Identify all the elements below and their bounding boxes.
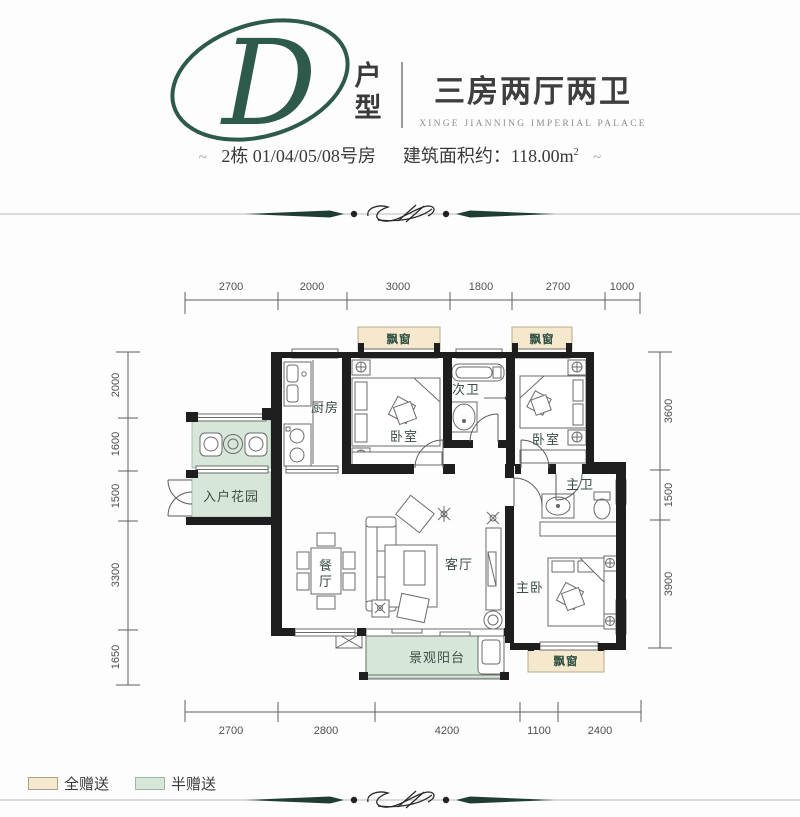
arrow-right-icon	[245, 797, 344, 804]
logo-caption-char-1: 户	[350, 60, 386, 92]
floor-plan: 2700 2000 3000 1800 2700 1000 2700 2800 …	[100, 272, 720, 750]
living-furniture	[366, 495, 502, 629]
dim-top-3: 3000	[386, 281, 410, 293]
dim-top-2: 2000	[300, 281, 324, 293]
bedroom2-furniture	[352, 360, 442, 465]
plant-icon	[487, 512, 499, 524]
logo-caption: 户 型	[350, 60, 386, 125]
page-title: 三房两厅两卫	[418, 66, 648, 111]
bay-window-label-3: 飘窗	[554, 654, 579, 668]
dim-top-6: 1000	[610, 281, 634, 293]
legend-swatch-half-gift	[135, 777, 165, 790]
ornament-divider-top	[0, 199, 800, 229]
building-number: 2栋 01/04/05/08号房	[221, 146, 376, 166]
dim-right-1: 3600	[663, 399, 675, 423]
bay-window-label-1: 飘窗	[387, 332, 412, 346]
dim-left-5: 1650	[110, 645, 122, 669]
room-label-master-bedroom: 主卧	[516, 580, 544, 595]
dim-bottom-5: 2400	[588, 725, 612, 737]
room-label-kitchen: 厨房	[311, 400, 339, 415]
flourish-left: ~	[199, 150, 207, 166]
bay-window-label-2: 飘窗	[530, 332, 555, 346]
dim-left-3: 1500	[110, 484, 122, 508]
arrow-left-icon	[456, 211, 555, 218]
unit-info-line: ~ 2栋 01/04/05/08号房 建筑面积约：118.00m2 ~	[0, 142, 800, 168]
arrow-right-icon	[245, 211, 344, 218]
room-label-dining-1: 餐	[319, 558, 333, 573]
dim-top-1: 2700	[219, 281, 243, 293]
dim-top-5: 2700	[546, 281, 570, 293]
room-label-dining-2: 厅	[319, 574, 333, 589]
legend: 全赠送 半赠送	[28, 773, 216, 794]
title-divider	[401, 62, 403, 128]
plant-icon	[438, 506, 450, 522]
dim-bottom-2: 2800	[314, 725, 338, 737]
title-block: 三房两厅两卫 XINGE JIANNING IMPERIAL PALACE	[418, 66, 648, 129]
logo-d-flourish: D	[160, 8, 360, 153]
kitchen-fixtures	[284, 360, 313, 466]
dim-left-4: 3300	[110, 563, 122, 587]
room-label-entry-garden: 入户花园	[203, 489, 259, 504]
arrow-left-icon	[456, 797, 555, 804]
room-label-living: 客厅	[445, 557, 473, 572]
area-label: 建筑面积约：	[403, 146, 511, 166]
room-label-bath2: 次卫	[452, 382, 480, 397]
room-label-bedroom3: 卧室	[532, 432, 560, 447]
dim-bottom-1: 2700	[219, 725, 243, 737]
dim-bottom-3: 4200	[435, 725, 459, 737]
master-bedroom-furniture	[548, 556, 617, 629]
legend-swatch-full-gift	[28, 777, 58, 790]
dim-left-2: 1600	[110, 432, 122, 456]
dim-bottom-4: 1100	[527, 725, 551, 737]
flourish-right: ~	[593, 150, 601, 166]
logo-caption-char-2: 型	[350, 92, 386, 124]
master-bath-fixtures	[540, 490, 620, 536]
legend-label-full-gift: 全赠送	[64, 773, 109, 794]
room-label-bedroom2: 卧室	[390, 429, 418, 444]
logo-letter: D	[220, 14, 317, 152]
dim-right-2: 1500	[663, 483, 675, 507]
page-subtitle: XINGE JIANNING IMPERIAL PALACE	[418, 119, 648, 129]
bedroom3-furniture	[520, 360, 586, 463]
room-label-balcony: 景观阳台	[409, 650, 465, 665]
area-sup: 2	[574, 147, 579, 158]
legend-label-half-gift: 半赠送	[171, 773, 216, 794]
dim-left-1: 2000	[110, 373, 122, 397]
area-value: 118.00m	[511, 146, 574, 166]
room-label-master-bath: 主卫	[566, 477, 594, 492]
dim-top-4: 1800	[469, 281, 493, 293]
dim-right-3: 3900	[663, 572, 675, 596]
